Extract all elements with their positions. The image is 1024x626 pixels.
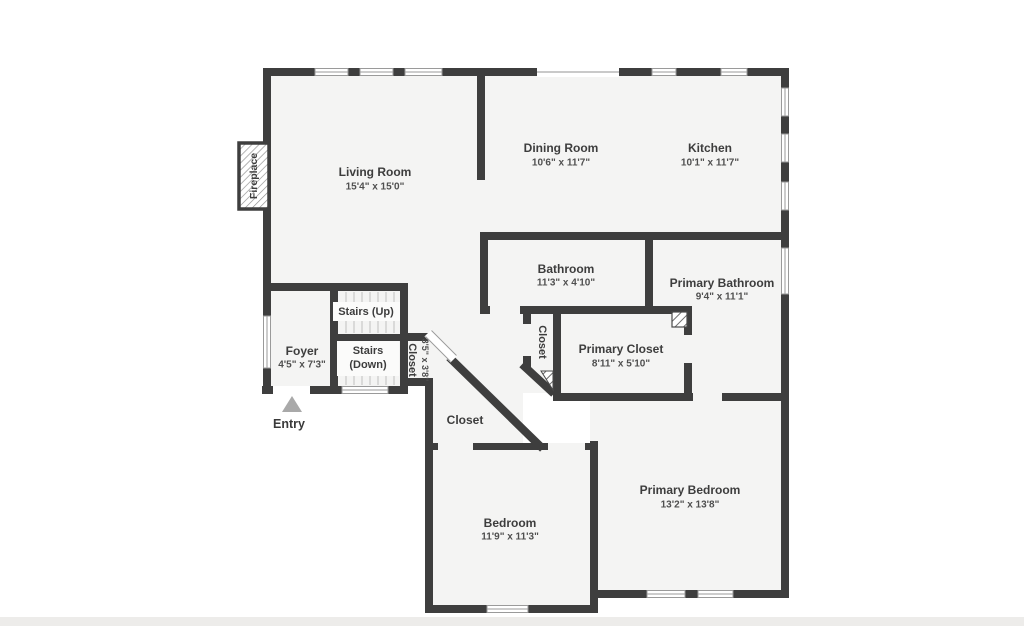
stairs-up-label: Stairs (Up) bbox=[338, 306, 394, 318]
bathroom-label: Bathroom bbox=[538, 262, 595, 276]
door-swing-hatch bbox=[672, 312, 687, 327]
window bbox=[721, 69, 747, 76]
foyer-dims: 4'5" x 7'3" bbox=[278, 360, 326, 371]
primary-bathroom-dims: 9'4" x 11'1" bbox=[696, 292, 749, 303]
bedroom-label: Bedroom bbox=[484, 516, 537, 530]
window bbox=[698, 591, 733, 598]
primary-closet-dims: 8'11" x 5'10" bbox=[592, 359, 650, 370]
window bbox=[360, 69, 393, 76]
entry-arrow-icon bbox=[282, 396, 302, 412]
stairs-down-label-1: Stairs bbox=[353, 345, 384, 357]
primary-bathroom-label: Primary Bathroom bbox=[670, 276, 775, 290]
wall-opening bbox=[537, 67, 619, 77]
primary-bedroom-dims: 13'2" x 13'8" bbox=[661, 500, 720, 511]
primary-bedroom-label: Primary Bedroom bbox=[640, 483, 741, 497]
dining-room-label: Dining Room bbox=[524, 141, 599, 155]
window bbox=[782, 134, 789, 162]
hall-closet-label: Closet bbox=[406, 343, 418, 377]
floorplan-image: Living Room 15'4" x 15'0" Dining Room 10… bbox=[0, 0, 1024, 626]
window bbox=[652, 69, 676, 76]
fireplace-label: Fireplace bbox=[248, 153, 260, 199]
stairs-down-label-2: (Down) bbox=[349, 359, 387, 371]
mid-closet-label: Closet bbox=[536, 325, 548, 359]
window bbox=[405, 69, 442, 76]
window bbox=[782, 182, 789, 210]
living-room-dims: 15'4" x 15'0" bbox=[346, 182, 405, 193]
window bbox=[487, 606, 528, 613]
kitchen-dims: 10'1" x 11'7" bbox=[681, 158, 739, 169]
window bbox=[264, 316, 271, 368]
window bbox=[647, 591, 685, 598]
window bbox=[782, 88, 789, 116]
living-room-label: Living Room bbox=[339, 165, 412, 179]
window bbox=[315, 69, 348, 76]
primary-closet-label: Primary Closet bbox=[579, 342, 664, 356]
window bbox=[342, 387, 388, 394]
hall-closet-dims: 3'5" x 3'8" bbox=[420, 339, 430, 382]
floorplan-svg: Living Room 15'4" x 15'0" Dining Room 10… bbox=[0, 0, 1024, 626]
page-bottom-strip bbox=[0, 617, 1024, 626]
bathroom-dims: 11'3" x 4'10" bbox=[537, 278, 595, 289]
dining-room-dims: 10'6" x 11'7" bbox=[532, 158, 590, 169]
foyer-label: Foyer bbox=[286, 344, 319, 358]
bedroom-dims: 11'9" x 11'3" bbox=[481, 532, 539, 543]
kitchen-label: Kitchen bbox=[688, 141, 732, 155]
window bbox=[782, 248, 789, 294]
entry-label: Entry bbox=[273, 417, 305, 431]
bedroom-closet-label: Closet bbox=[447, 413, 484, 427]
